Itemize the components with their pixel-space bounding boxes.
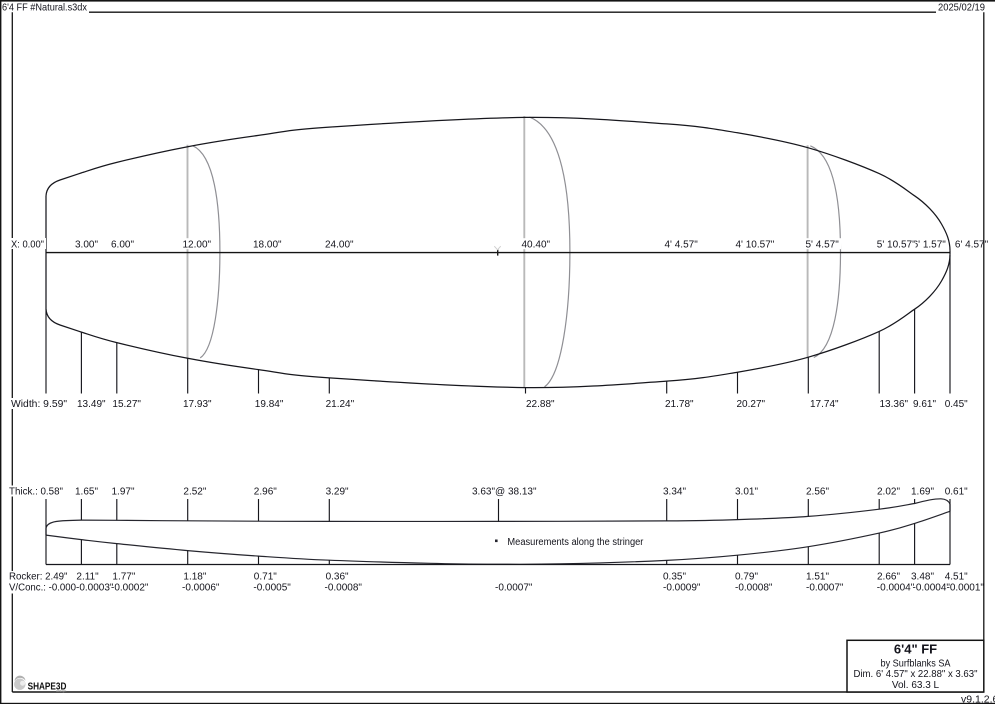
- svg-text:3.29": 3.29": [326, 486, 349, 497]
- svg-text:2.96": 2.96": [254, 486, 277, 497]
- svg-text:4' 4.57": 4' 4.57": [665, 239, 699, 250]
- svg-text:3.34": 3.34": [663, 486, 686, 497]
- svg-text:2.52": 2.52": [183, 486, 206, 497]
- svg-text:0.79": 0.79": [735, 572, 758, 583]
- svg-text:Dim. 6' 4.57" x 22.88" x 3.63": Dim. 6' 4.57" x 22.88" x 3.63": [854, 669, 978, 680]
- svg-text:3.00": 3.00": [75, 239, 98, 250]
- svg-text:2025/02/19: 2025/02/19: [938, 1, 985, 13]
- svg-text:Measurements along the stringe: Measurements along the stringer: [507, 537, 644, 548]
- svg-text:6.00": 6.00": [111, 239, 134, 250]
- svg-text:24.00": 24.00": [325, 239, 354, 250]
- svg-text:21.78": 21.78": [665, 399, 694, 410]
- svg-text:0.61": 0.61": [945, 486, 968, 497]
- svg-text:3.01": 3.01": [735, 486, 758, 497]
- svg-text:17.93": 17.93": [183, 399, 212, 410]
- svg-text:0.36": 0.36": [326, 572, 349, 583]
- svg-text:13.49": 13.49": [77, 399, 106, 410]
- svg-text:1.69": 1.69": [911, 486, 934, 497]
- svg-text:6'4" FF: 6'4" FF: [894, 641, 937, 656]
- svg-text:6'4 FF #Natural.s3dx: 6'4 FF #Natural.s3dx: [2, 1, 88, 13]
- svg-text:-0.0008": -0.0008": [325, 583, 363, 594]
- svg-text:13.36": 13.36": [880, 399, 909, 410]
- svg-text:-0.0006": -0.0006": [182, 583, 220, 594]
- svg-text:1.18": 1.18": [183, 572, 206, 583]
- svg-text:-0.0008": -0.0008": [735, 583, 773, 594]
- svg-text:5' 4.57": 5' 4.57": [806, 239, 840, 250]
- svg-text:-0.0002": -0.0002": [111, 583, 149, 594]
- svg-text:2.66": 2.66": [877, 572, 900, 583]
- svg-text:4' 10.57": 4' 10.57": [736, 239, 775, 250]
- svg-text:-0.0003": -0.0003": [76, 583, 114, 594]
- svg-text:-0.0004": -0.0004": [877, 583, 915, 594]
- svg-text:22.88": 22.88": [526, 399, 555, 410]
- svg-text:v9.1.2.6: v9.1.2.6: [961, 693, 995, 704]
- svg-text:4.51": 4.51": [945, 572, 968, 583]
- svg-text:1.51": 1.51": [806, 572, 829, 583]
- svg-text:9.61": 9.61": [913, 399, 936, 410]
- svg-text:-0.0009": -0.0009": [663, 583, 701, 594]
- svg-text:-0.0005": -0.0005": [253, 583, 291, 594]
- svg-text:21.24": 21.24": [326, 399, 355, 410]
- svg-text:20.27": 20.27": [737, 399, 766, 410]
- svg-text:15.27": 15.27": [112, 399, 141, 410]
- svg-text:1.77": 1.77": [112, 572, 135, 583]
- svg-text:Rocker: 2.49": Rocker: 2.49": [9, 572, 68, 583]
- svg-text:5' 10.57": 5' 10.57": [877, 239, 916, 250]
- svg-text:18.00": 18.00": [253, 239, 282, 250]
- svg-text:V/Conc.: -0.000: V/Conc.: -0.000: [9, 583, 76, 594]
- svg-text:6' 1.57": 6' 1.57": [913, 239, 947, 250]
- svg-text:X: 0.00": X: 0.00": [11, 239, 44, 250]
- svg-text:12.00": 12.00": [183, 239, 212, 250]
- svg-text:2.02": 2.02": [877, 486, 900, 497]
- svg-text:Vol. 63.3 L: Vol. 63.3 L: [892, 680, 940, 691]
- svg-text:2.56": 2.56": [806, 486, 829, 497]
- svg-text:by Surfblanks SA: by Surfblanks SA: [881, 658, 951, 669]
- svg-text:40.40": 40.40": [522, 239, 551, 250]
- svg-text:19.84": 19.84": [255, 399, 284, 410]
- svg-text:17.74": 17.74": [810, 399, 839, 410]
- svg-text:-0.0007": -0.0007": [806, 583, 844, 594]
- svg-text:Thick.: 0.58": Thick.: 0.58": [9, 486, 63, 497]
- svg-text:1.65": 1.65": [75, 486, 98, 497]
- svg-text:3.48": 3.48": [911, 572, 934, 583]
- svg-text:2.11": 2.11": [76, 572, 99, 583]
- svg-text:-0.0001": -0.0001": [947, 583, 985, 594]
- svg-text:6' 4.57": 6' 4.57": [955, 239, 989, 250]
- svg-text:1.97": 1.97": [112, 486, 135, 497]
- svg-text:3.63"@ 38.13": 3.63"@ 38.13": [472, 486, 537, 497]
- svg-text:0.71": 0.71": [254, 572, 277, 583]
- svg-text:design: design: [56, 689, 66, 693]
- svg-text:0.35": 0.35": [663, 572, 686, 583]
- svg-text:0.45": 0.45": [945, 399, 968, 410]
- svg-text:Width: 9.59": Width: 9.59": [11, 399, 67, 410]
- svg-text:-0.0004": -0.0004": [913, 583, 951, 594]
- svg-text:-0.0007": -0.0007": [495, 583, 533, 594]
